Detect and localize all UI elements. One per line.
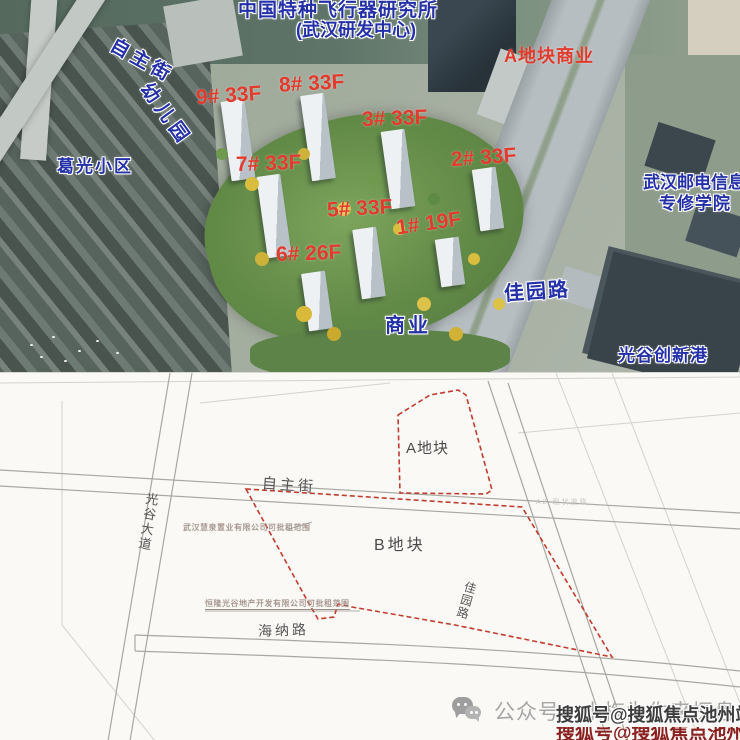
jiayuan-road-label: 佳园路	[503, 279, 570, 306]
innovation-port-label: 光谷创新港	[618, 347, 708, 366]
commercial-garden	[250, 330, 510, 372]
building-label-3: 3# 33F	[362, 106, 428, 131]
wechat-eye	[464, 703, 467, 706]
aerial-photo: 中国特种飞行器研究所 (武汉研发中心) 自主街 幼儿园 葛光小区 A地块商业 9…	[0, 0, 740, 372]
institute-label-line2: (武汉研发中心)	[296, 21, 416, 41]
map-roads	[0, 373, 740, 740]
plot-b-label: B地块	[374, 531, 426, 555]
commercial-label: 商业	[385, 315, 431, 337]
building-label-5: 5# 33F	[326, 195, 393, 221]
building-label-6: 6# 26F	[276, 241, 342, 266]
institute-label-line1: 中国特种飞行器研究所	[238, 1, 438, 22]
building-label-9: 9# 33F	[195, 82, 262, 110]
plot-note-1: 武汉慧泉置业有限公司可批租范围	[183, 522, 311, 533]
map-haina-road-label: 海纳路	[258, 619, 310, 641]
geguang-label: 葛光小区	[57, 158, 133, 177]
building-label-7: 7# 33F	[236, 151, 302, 176]
plot-note-2: 恒隆光谷地产开发有限公司可批租范围	[205, 598, 350, 610]
wechat-bubble-small	[465, 706, 481, 719]
college-label-line1: 武汉邮电信息	[643, 174, 740, 193]
wechat-eye	[475, 711, 478, 714]
college-label-line2: 专修学院	[659, 195, 731, 214]
sohu-watermark-clipped: 搜狐号@搜狐焦点池州站	[556, 727, 740, 740]
sohu-watermark: 搜狐号@搜狐焦点池州站	[556, 701, 740, 727]
marketing-image: 中国特种飞行器研究所 (武汉研发中心) 自主街 幼儿园 葛光小区 A地块商业 9…	[0, 0, 740, 740]
institute-roof	[163, 0, 243, 68]
wechat-eye	[470, 711, 473, 714]
plot-note-3: A2 现状道路	[536, 497, 589, 507]
site-plan	[0, 372, 740, 740]
parcel-lines	[0, 373, 740, 740]
wechat-icon	[452, 695, 484, 727]
plot-a-label: A地块	[406, 437, 449, 458]
wechat-eye	[457, 703, 460, 706]
building-label-8: 8# 33F	[278, 70, 345, 96]
corner-building	[688, 0, 740, 60]
building-label-2: 2# 33F	[450, 144, 517, 172]
site-plan-drawing	[0, 373, 740, 740]
birds	[0, 0, 3, 2]
sohu-watermark-repeat: 搜狐号@搜狐焦点池州站	[556, 727, 740, 740]
plot-a-commercial-label: A地块商业	[504, 47, 594, 67]
map-zizhu-street-label: 自主街	[261, 472, 316, 497]
